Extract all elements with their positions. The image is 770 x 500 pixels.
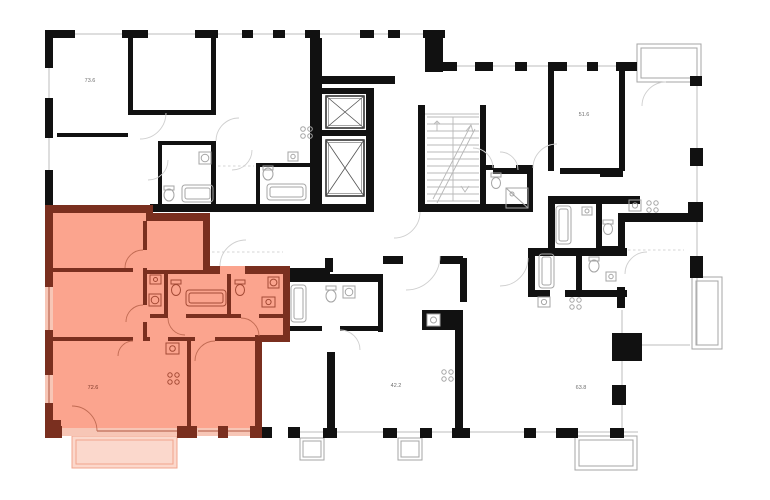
balcony	[575, 436, 637, 470]
floor-plan: 72.6 73.6 51.6 42.2 63.8	[0, 0, 770, 500]
sink-icon	[288, 152, 298, 161]
balcony	[398, 438, 422, 460]
balcony	[72, 436, 177, 468]
toilet-icon	[589, 257, 599, 272]
sink-icon	[538, 297, 550, 307]
washing-machine-icon	[199, 152, 211, 164]
toilet-icon	[491, 173, 501, 189]
sink-icon	[427, 314, 440, 326]
stove-icon	[442, 370, 453, 381]
toilet-icon	[164, 186, 174, 201]
area-label-63-8: 63.8	[576, 385, 587, 391]
sink-icon	[582, 207, 592, 215]
stove-icon	[570, 298, 581, 309]
area-label-51-6: 51.6	[579, 112, 590, 118]
apartment-72-6-highlighted[interactable]: 72.6	[45, 205, 290, 468]
floor-plan-page: 72.6 73.6 51.6 42.2 63.8	[0, 0, 770, 500]
area-label-73-6: 73.6	[85, 78, 96, 84]
toilet-icon	[603, 220, 613, 235]
elevator-icon	[326, 96, 364, 196]
sink-icon	[606, 272, 616, 281]
bathtub-icon	[539, 254, 554, 288]
balcony	[300, 438, 324, 460]
toilet-icon	[263, 166, 273, 180]
area-label-42-2: 42.2	[391, 383, 402, 389]
bathtub-icon	[267, 184, 306, 200]
staircase-icon	[427, 117, 479, 203]
bathtub-icon	[291, 285, 306, 322]
stove-icon	[647, 201, 658, 212]
washing-machine-icon	[343, 286, 355, 298]
bathtub-icon	[182, 185, 213, 202]
balcony	[692, 277, 722, 349]
bathtub-icon	[556, 206, 571, 244]
toilet-icon	[326, 286, 336, 302]
area-label-72-6: 72.6	[88, 385, 99, 391]
